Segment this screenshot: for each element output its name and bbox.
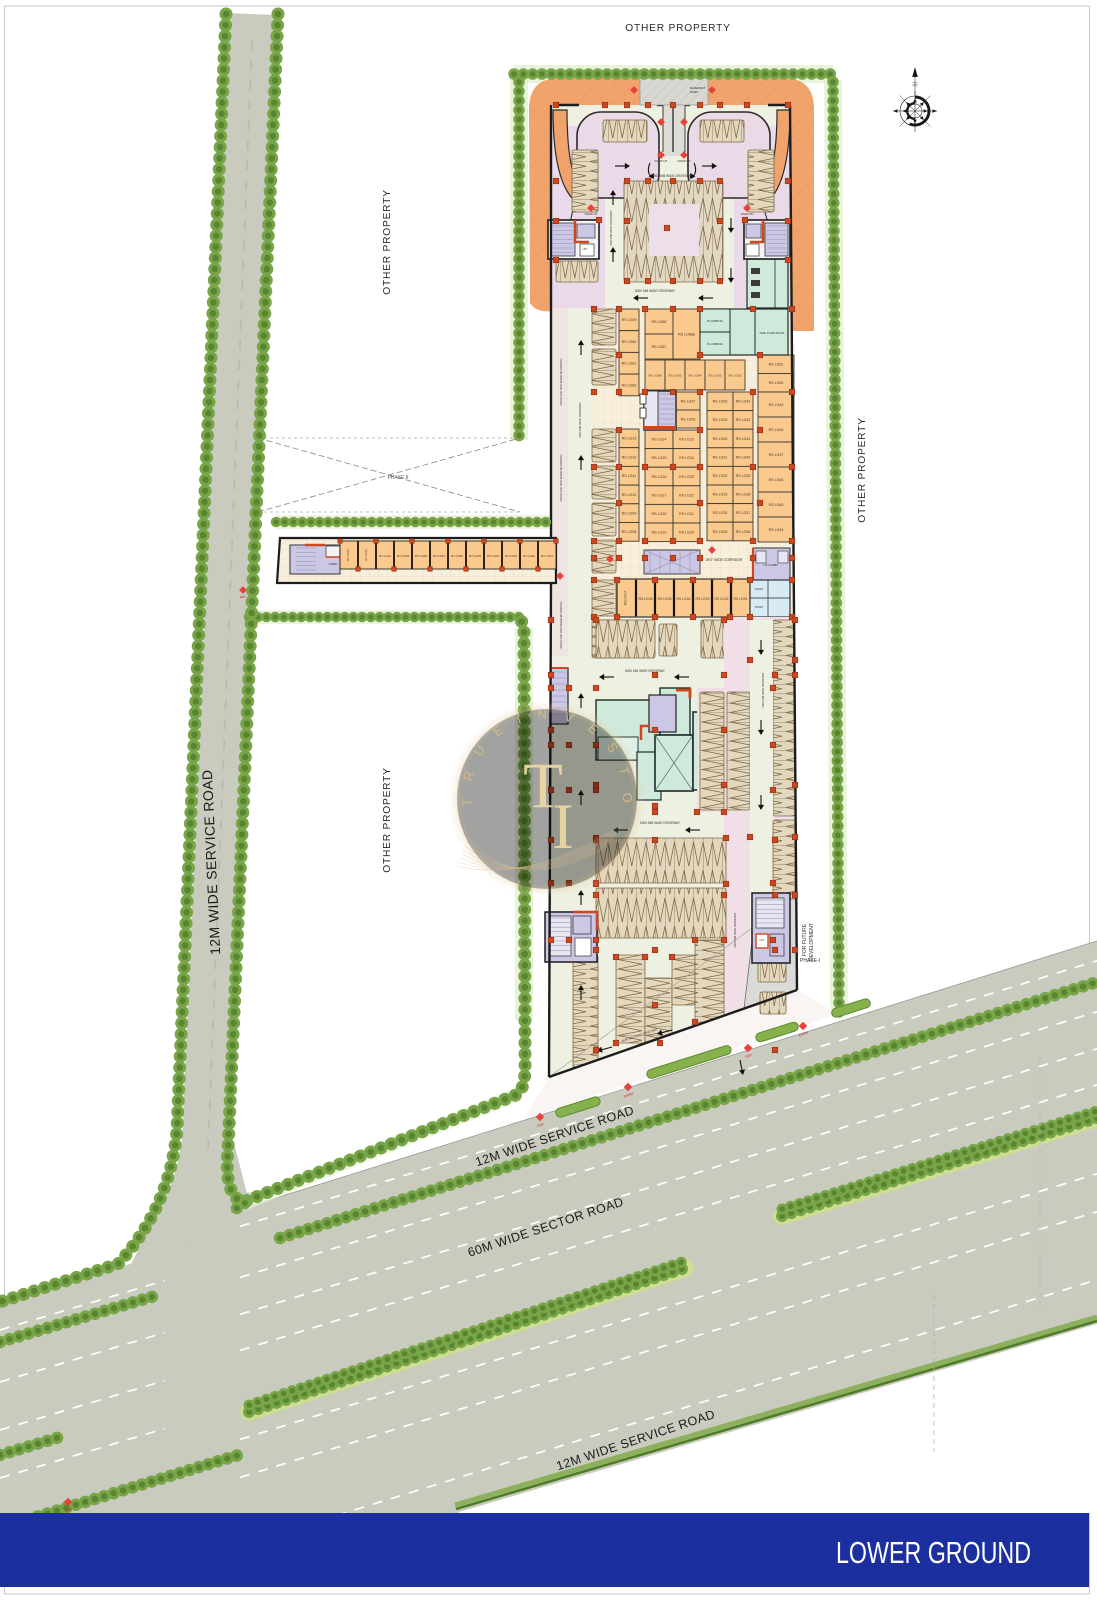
svg-text:SPACE FOR TWO WHEELER PARKING: SPACE FOR TWO WHEELER PARKING xyxy=(559,454,563,501)
svg-text:RAMP: RAMP xyxy=(690,90,698,94)
svg-text:SPACE FOR TWO WHEELER PARKING: SPACE FOR TWO WHEELER PARKING xyxy=(559,358,563,405)
svg-text:RS LG22: RS LG22 xyxy=(679,493,694,497)
svg-text:TOILET: TOILET xyxy=(754,605,763,609)
svg-text:RS LG15: RS LG15 xyxy=(652,456,667,460)
svg-text:RS LG67: RS LG67 xyxy=(652,345,667,349)
svg-text:RS LG10: RS LG10 xyxy=(622,493,637,497)
svg-text:RS LG30: RS LG30 xyxy=(713,437,728,441)
svg-text:PLUMBING: PLUMBING xyxy=(707,342,723,346)
svg-text:RS LG38: RS LG38 xyxy=(736,493,751,497)
svg-text:R7 LG11: R7 LG11 xyxy=(364,549,368,561)
svg-text:6000 MM WIDE DRIVEWAY: 6000 MM WIDE DRIVEWAY xyxy=(761,672,765,707)
svg-text:RAMP UP: RAMP UP xyxy=(585,212,598,216)
svg-text:RS LG68a: RS LG68a xyxy=(678,332,695,336)
svg-text:RS LG63: RS LG63 xyxy=(709,373,722,377)
svg-text:RS LG50: RS LG50 xyxy=(769,381,784,385)
svg-text:RS LG60: RS LG60 xyxy=(622,340,637,344)
svg-text:RS LG19: RS LG19 xyxy=(652,531,667,535)
svg-text:RS LG31: RS LG31 xyxy=(713,455,728,459)
svg-text:RS LG17: RS LG17 xyxy=(652,493,667,497)
svg-text:RS LG02: RS LG02 xyxy=(715,597,729,601)
svg-text:OTHER PROPERTY: OTHER PROPERTY xyxy=(382,189,393,295)
svg-text:RS LG18: RS LG18 xyxy=(652,512,667,516)
svg-text:RS LG41: RS LG41 xyxy=(736,437,751,441)
svg-text:OTHER PROPERTY: OTHER PROPERTY xyxy=(857,417,868,523)
svg-text:PHASE-I: PHASE-I xyxy=(800,958,820,964)
svg-text:7500 MM WIDE DRIVEWAY: 7500 MM WIDE DRIVEWAY xyxy=(652,174,693,178)
svg-text:RS LG45: RS LG45 xyxy=(769,503,784,507)
svg-text:RS LG29: RS LG29 xyxy=(713,418,728,422)
svg-text:RT LG10: RT LG10 xyxy=(379,554,391,558)
svg-text:OTHER PROPERTY: OTHER PROPERTY xyxy=(382,767,393,873)
svg-text:RS LG40: RS LG40 xyxy=(736,455,751,459)
svg-text:RS LG20: RS LG20 xyxy=(679,531,694,535)
svg-text:RS LG25: RS LG25 xyxy=(679,475,694,479)
svg-text:RS LG66: RS LG66 xyxy=(649,373,662,377)
svg-text:RT LG04: RT LG04 xyxy=(487,554,499,558)
svg-text:RS LG47: RS LG47 xyxy=(769,453,784,457)
svg-text:6000 MM WIDE DRIVEWAY: 6000 MM WIDE DRIVEWAY xyxy=(635,289,676,293)
svg-text:RS LG07: RS LG07 xyxy=(624,591,628,605)
svg-text:RS LG48: RS LG48 xyxy=(769,428,784,432)
svg-text:RS LG08: RS LG08 xyxy=(622,530,637,534)
svg-text:SPACE FOR TWO WHEELER PARKING: SPACE FOR TWO WHEELER PARKING xyxy=(559,601,563,648)
svg-text:RS LG62: RS LG62 xyxy=(729,373,742,377)
svg-text:I: I xyxy=(552,791,574,863)
svg-text:RS LG09: RS LG09 xyxy=(622,511,637,515)
svg-text:RS LG06: RS LG06 xyxy=(639,597,653,601)
svg-text:OTHER PROPERTY: OTHER PROPERTY xyxy=(625,23,731,34)
svg-text:RS LG46: RS LG46 xyxy=(769,478,784,482)
svg-text:PLUMBING: PLUMBING xyxy=(707,319,723,323)
svg-text:RAMP DN: RAMP DN xyxy=(741,212,754,216)
svg-text:FOR FUTURE: FOR FUTURE xyxy=(802,923,808,956)
svg-text:RS LG43: RS LG43 xyxy=(736,400,751,404)
svg-text:RS LG13: RS LG13 xyxy=(622,437,637,441)
svg-text:RS LG42: RS LG42 xyxy=(736,418,751,422)
svg-text:RS LG05: RS LG05 xyxy=(622,318,637,322)
svg-text:RT LG05: RT LG05 xyxy=(469,554,481,558)
svg-text:6000 MM WIDE DRIVEWAY: 6000 MM WIDE DRIVEWAY xyxy=(578,402,582,437)
svg-text:RS LG66: RS LG66 xyxy=(652,320,667,324)
svg-text:RS LG37: RS LG37 xyxy=(736,511,751,515)
svg-text:TOILET: TOILET xyxy=(754,587,763,591)
svg-text:RS LG21: RS LG21 xyxy=(679,512,694,516)
svg-text:RS LG44: RS LG44 xyxy=(769,528,784,532)
svg-text:RS LG26: RS LG26 xyxy=(681,417,696,421)
svg-text:RT LG07: RT LG07 xyxy=(433,554,445,558)
svg-text:RT LG08: RT LG08 xyxy=(415,554,427,558)
svg-text:RS LG05: RS LG05 xyxy=(658,597,672,601)
svg-text:RS LG14: RS LG14 xyxy=(652,438,667,442)
svg-text:RT LG03: RT LG03 xyxy=(505,554,517,558)
svg-text:RS LG36: RS LG36 xyxy=(736,530,751,534)
svg-text:RT LG09: RT LG09 xyxy=(397,554,409,558)
svg-text:FIRE PUMP ROOM: FIRE PUMP ROOM xyxy=(760,331,785,335)
svg-text:DEVELOPMENT: DEVELOPMENT xyxy=(809,923,815,961)
svg-text:RS LG11: RS LG11 xyxy=(622,474,637,478)
svg-text:6000 MM WIDE DRIVEWAY: 6000 MM WIDE DRIVEWAY xyxy=(625,669,666,673)
svg-text:LIFT: LIFT xyxy=(583,248,588,251)
svg-text:26'0" WIDE CORRIDOR: 26'0" WIDE CORRIDOR xyxy=(706,558,743,562)
svg-text:LOWER GROUND: LOWER GROUND xyxy=(836,1536,1031,1570)
svg-text:RS LG28: RS LG28 xyxy=(713,400,728,404)
svg-text:PHASE II: PHASE II xyxy=(387,475,408,481)
svg-text:RS LG64: RS LG64 xyxy=(689,373,702,377)
svg-text:RS LG65: RS LG65 xyxy=(669,373,682,377)
svg-text:RS LG51: RS LG51 xyxy=(769,363,784,367)
svg-text:RS LG32: RS LG32 xyxy=(713,474,728,478)
svg-text:RS LG33: RS LG33 xyxy=(713,493,728,497)
svg-text:RS LG49: RS LG49 xyxy=(769,403,784,407)
svg-text:RS LG16: RS LG16 xyxy=(652,475,667,479)
svg-text:6000 MM WIDE DRIVEWAY: 6000 MM WIDE DRIVEWAY xyxy=(609,210,613,245)
svg-text:LOBBY: LOBBY xyxy=(329,562,338,566)
svg-text:6000 MM WIDE DRIVEWAY: 6000 MM WIDE DRIVEWAY xyxy=(640,821,681,825)
svg-text:RS LG01: RS LG01 xyxy=(734,597,748,601)
svg-text:LIFT: LIFT xyxy=(760,939,765,942)
svg-text:RS LG12: RS LG12 xyxy=(622,455,637,459)
svg-text:R7 LG12: R7 LG12 xyxy=(346,549,350,561)
svg-text:RS LG35: RS LG35 xyxy=(713,530,728,534)
svg-text:RS LG61: RS LG61 xyxy=(622,362,637,366)
svg-text:RS LG63: RS LG63 xyxy=(622,383,637,387)
svg-text:RS LG03: RS LG03 xyxy=(696,597,710,601)
svg-text:RT LG02: RT LG02 xyxy=(523,554,535,558)
svg-text:RAMP DN: RAMP DN xyxy=(678,159,691,163)
svg-text:4500 MM WIDE DRIVEWAY: 4500 MM WIDE DRIVEWAY xyxy=(733,912,737,947)
svg-text:RT LG01: RT LG01 xyxy=(541,554,553,558)
svg-text:RS LG04: RS LG04 xyxy=(677,597,691,601)
svg-text:RT LG06: RT LG06 xyxy=(451,554,463,558)
svg-text:RAMP UP: RAMP UP xyxy=(655,159,668,163)
svg-text:RS LG34: RS LG34 xyxy=(713,511,728,515)
svg-text:RS LG39: RS LG39 xyxy=(736,474,751,478)
svg-text:EXIT: EXIT xyxy=(240,595,246,599)
svg-text:RS LG23: RS LG23 xyxy=(679,438,694,442)
svg-text:RS LG24: RS LG24 xyxy=(679,456,694,460)
svg-text:RS LG27: RS LG27 xyxy=(681,399,696,403)
svg-text:LIFT LOBBY: LIFT LOBBY xyxy=(764,563,779,567)
